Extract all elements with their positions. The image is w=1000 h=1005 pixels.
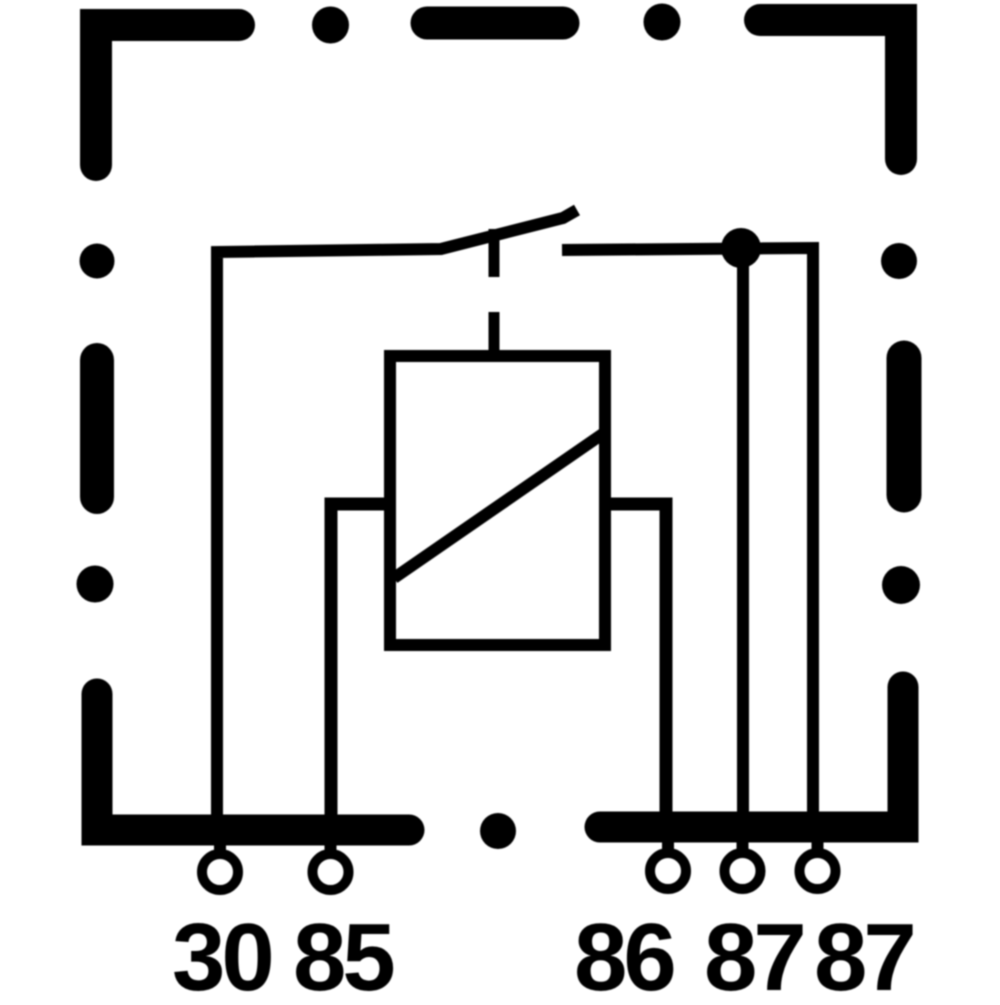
svg-text:30: 30 [172,904,271,1000]
svg-text:87: 87 [704,904,803,1000]
svg-text:86: 86 [574,904,673,1000]
svg-text:87: 87 [814,904,913,1000]
svg-text:85: 85 [293,904,393,1000]
